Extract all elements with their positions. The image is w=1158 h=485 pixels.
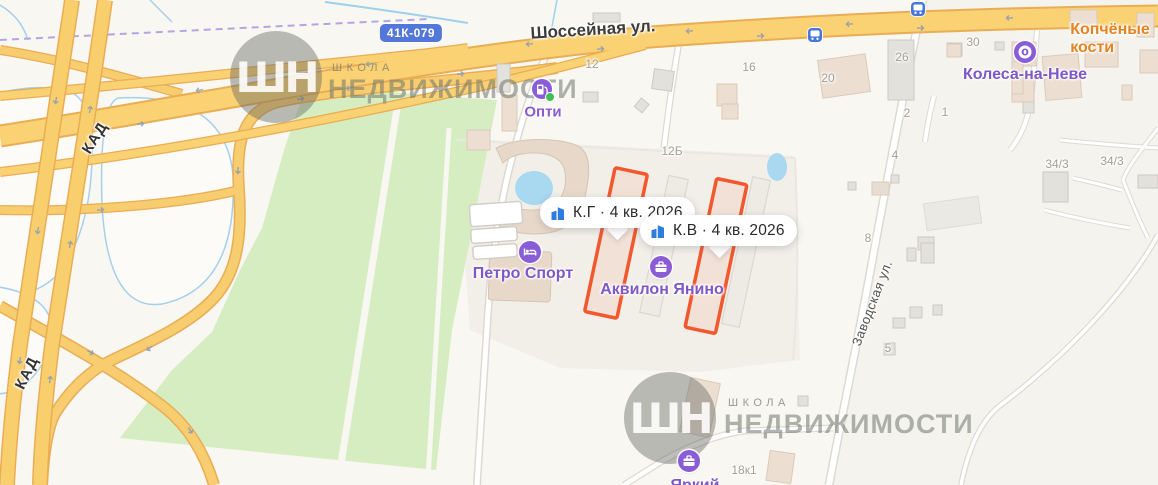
watermark-logo-text: ШН (235, 53, 316, 102)
briefcase-icon (650, 256, 672, 278)
tooltip-text: К.В · 4 кв. 2026 (673, 222, 785, 240)
building-icon (650, 223, 666, 238)
bus-glyph (808, 28, 822, 42)
building-number: 1 (942, 105, 949, 119)
watermark-school-text: ШКОЛА (332, 62, 394, 74)
building-number: 34/3 (1100, 154, 1123, 168)
watermark-logo-text: ШН (629, 394, 710, 443)
open-status-dot (545, 92, 555, 102)
building-icon (550, 205, 566, 220)
poi-label-opti[interactable]: Опти (524, 104, 561, 121)
building-number: 5 (885, 341, 892, 355)
poi-opti[interactable] (532, 79, 552, 99)
bus-stop-icon[interactable] (911, 2, 925, 16)
building-number: 30 (966, 35, 979, 49)
briefcase-icon (678, 450, 700, 472)
poi-label-kopchyonye[interactable]: Копчёные кости (1070, 21, 1150, 57)
road-shield-41k079: 41К-079 (380, 24, 442, 42)
building-number: 26 (895, 50, 908, 64)
poi-petro-sport[interactable] (519, 241, 541, 263)
tire-icon (1014, 41, 1036, 63)
building-number: 16 (742, 60, 755, 74)
tooltip-kv-q4-2026[interactable]: К.В · 4 кв. 2026 (640, 215, 797, 246)
building-number: 12 (585, 57, 598, 71)
map-canvas[interactable]: ШН ШКОЛА НЕДВИЖИМОСТИ ШН ШКОЛА НЕДВИЖИМО… (0, 0, 1158, 485)
poi-label-yarkiy[interactable]: Яркий (671, 477, 720, 485)
building-number: 8 (865, 231, 872, 245)
poi-label-kolesa[interactable]: Колеса-на-Неве (963, 66, 1087, 84)
watermark-school-text: ШКОЛА (728, 397, 790, 409)
building-number: 4 (892, 148, 899, 162)
building-number: 20 (821, 71, 834, 85)
small-pond (767, 153, 787, 181)
poi-akvilon[interactable] (650, 256, 672, 278)
watermark-logo: ШН (624, 372, 716, 464)
hotel-icon (519, 241, 541, 263)
fuel-station-icon (532, 79, 552, 99)
building-number: 12Б (661, 144, 682, 158)
building-number: 18к1 (731, 463, 756, 477)
building-number: 34/3 (1045, 157, 1068, 171)
poi-label-petro-sport[interactable]: Петро Спорт (473, 265, 573, 283)
poi-label-akvilon[interactable]: Аквилон Янино (600, 281, 724, 299)
bus-stop-icon[interactable] (808, 28, 822, 42)
watermark-realty-text: НЕДВИЖИМОСТИ (724, 409, 974, 440)
poi-kolesa[interactable] (1014, 41, 1036, 63)
watermark-logo: ШН (230, 31, 322, 123)
building-number: 2 (904, 106, 911, 120)
bus-glyph (911, 2, 925, 16)
poi-yarkiy[interactable] (678, 450, 700, 472)
